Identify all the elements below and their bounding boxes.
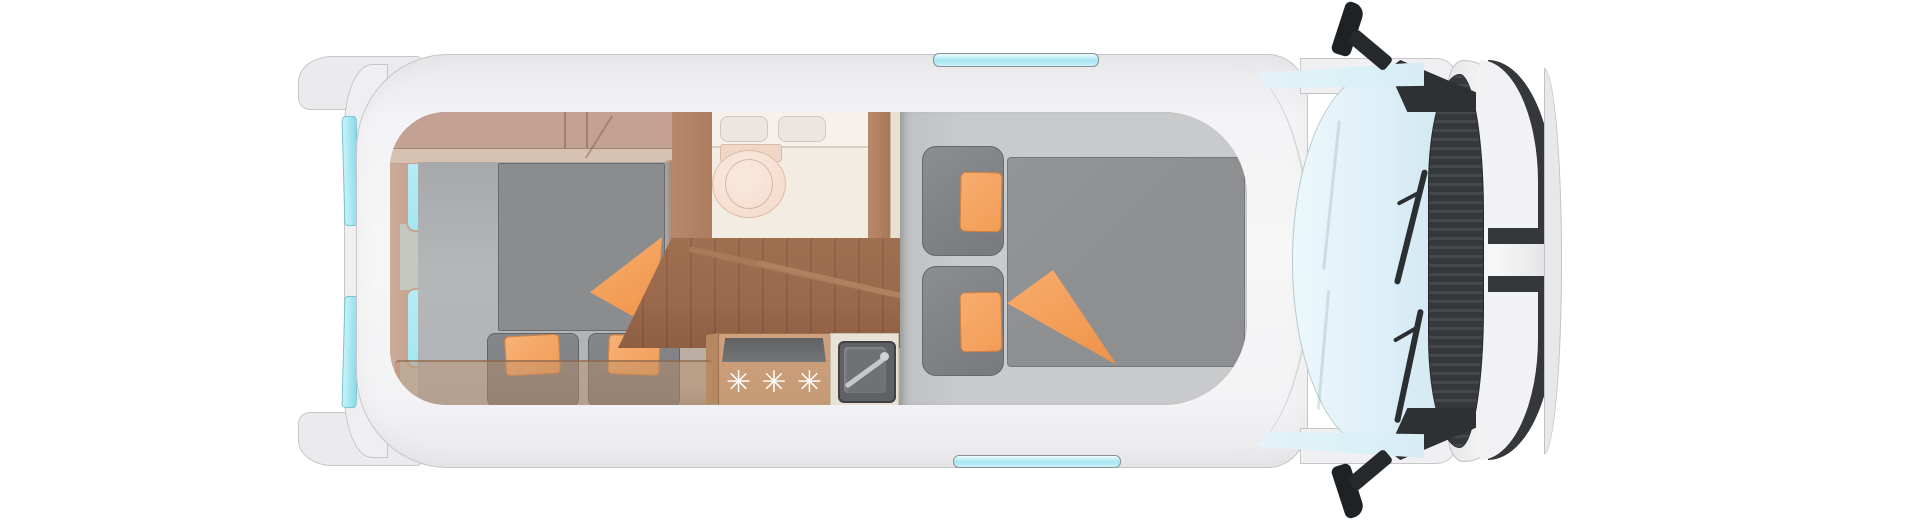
washbasin-right <box>778 116 826 142</box>
cabinet-divider <box>564 112 566 148</box>
stove-glass-lid <box>722 338 826 362</box>
hood-curve-bottom <box>1480 292 1538 460</box>
bed-duvet <box>1007 157 1245 367</box>
roof-vent-top <box>933 53 1099 67</box>
burner-icon: ✳ <box>797 362 822 404</box>
cabinet-divider <box>586 112 588 148</box>
burner-icon: ✳ <box>761 362 786 404</box>
kitchen-faucet-base <box>880 352 889 361</box>
toilet <box>712 150 786 218</box>
roof-vent-bottom <box>953 455 1121 468</box>
front-bumper <box>1544 68 1562 454</box>
windshield <box>1292 72 1440 450</box>
bed-orange-pillow-bottom <box>959 292 1002 353</box>
interior-cutout: ✳ ✳ ✳ <box>390 112 1247 405</box>
campervan-floorplan: ✳ ✳ ✳ <box>0 0 1920 520</box>
wiper-cowl-panel <box>1428 74 1484 448</box>
toilet-seat-ring <box>725 159 773 209</box>
stove-burner-symbols: ✳ ✳ ✳ <box>726 362 822 404</box>
cabinet-shelf-edge <box>390 148 672 163</box>
hood-curve-top <box>1480 60 1538 228</box>
washbasin-left <box>720 116 768 142</box>
burner-icon: ✳ <box>726 362 751 404</box>
bed-orange-pillow-top <box>959 172 1002 233</box>
lounge-table-translucent <box>395 360 712 405</box>
